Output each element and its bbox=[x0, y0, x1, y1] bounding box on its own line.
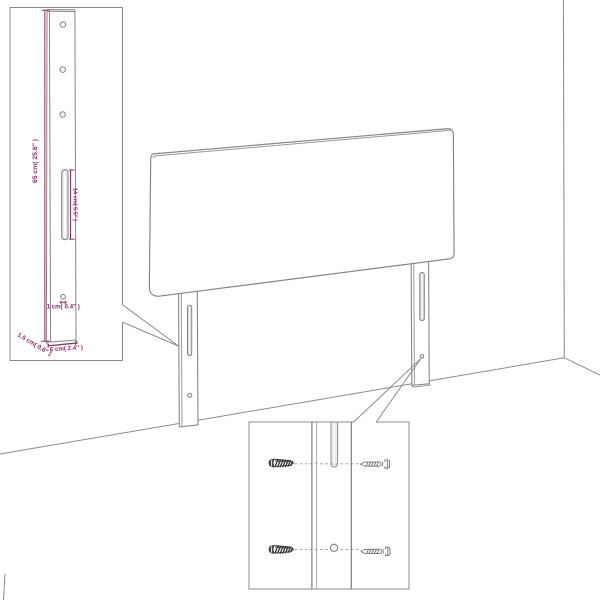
svg-text:1 cm( 0.4″ ): 1 cm( 0.4″ ) bbox=[47, 303, 80, 310]
svg-text:65 cm( 25.6″ ): 65 cm( 25.6″ ) bbox=[32, 139, 39, 183]
svg-text:14 cm( 5.5″ ): 14 cm( 5.5″ ) bbox=[72, 188, 78, 221]
